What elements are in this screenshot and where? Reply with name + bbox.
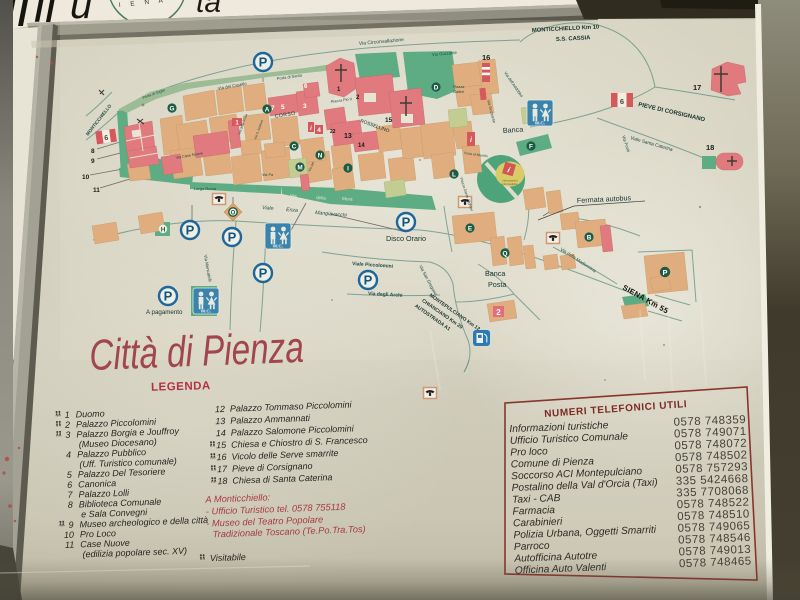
svg-text:N: N	[318, 152, 323, 159]
svg-text:16: 16	[216, 452, 226, 462]
svg-text:Posta: Posta	[488, 280, 506, 289]
svg-text:14: 14	[216, 428, 226, 438]
svg-text:8: 8	[68, 500, 73, 510]
svg-text:13: 13	[344, 133, 352, 140]
svg-text:Disco Orario: Disco Orario	[386, 234, 426, 243]
svg-text:O: O	[231, 211, 236, 217]
svg-text:15: 15	[216, 440, 227, 450]
svg-text:Enza: Enza	[286, 207, 298, 214]
svg-text:7: 7	[271, 105, 275, 112]
svg-text:3: 3	[303, 103, 307, 110]
svg-text:Carabinieri: Carabinieri	[513, 516, 563, 529]
svg-text:Via Pa: Via Pa	[262, 173, 274, 177]
svg-text:Mura: Mura	[342, 196, 353, 202]
svg-text:G: G	[170, 105, 175, 112]
svg-text:Largo Roma: Largo Roma	[194, 186, 217, 191]
svg-text:Q: Q	[503, 250, 508, 257]
svg-text:1: 1	[65, 410, 70, 420]
svg-text:11: 11	[65, 540, 75, 550]
svg-text:11: 11	[93, 187, 100, 194]
svg-text:5: 5	[281, 104, 285, 111]
svg-text:Banca: Banca	[485, 269, 505, 278]
svg-text:della: della	[316, 195, 326, 201]
svg-text:15: 15	[385, 117, 393, 124]
svg-text:A: A	[265, 106, 270, 113]
svg-text:17: 17	[217, 464, 228, 474]
svg-text:Parroco: Parroco	[514, 541, 550, 553]
svg-text:22: 22	[330, 129, 336, 135]
svg-text:ta: ta	[196, 0, 221, 19]
svg-text:4: 4	[66, 450, 71, 460]
svg-text:Taxi - CAB: Taxi - CAB	[512, 493, 561, 506]
svg-text:13: 13	[215, 416, 225, 426]
svg-text:H: H	[161, 226, 166, 233]
svg-text:L: L	[452, 171, 456, 178]
svg-text:F: F	[529, 143, 533, 150]
svg-text:Viale: Viale	[262, 205, 274, 212]
svg-text:E: E	[468, 225, 473, 232]
svg-text:C: C	[292, 143, 297, 150]
svg-text:Città di Pienza: Città di Pienza	[89, 324, 305, 380]
svg-text:18: 18	[217, 476, 227, 486]
svg-text:14: 14	[358, 143, 365, 149]
svg-text:A pagamento: A pagamento	[146, 309, 183, 316]
svg-text:18: 18	[706, 143, 714, 152]
svg-text:M: M	[297, 164, 302, 171]
svg-text:10: 10	[82, 174, 90, 181]
svg-text:Piazza: Piazza	[453, 85, 465, 89]
svg-text:8: 8	[91, 148, 95, 155]
svg-text:D: D	[434, 84, 439, 91]
svg-text:I: I	[347, 165, 349, 172]
svg-text:9: 9	[68, 520, 73, 530]
svg-text:3: 3	[65, 430, 70, 440]
svg-text:B: B	[587, 234, 592, 241]
svg-text:6: 6	[67, 480, 72, 490]
svg-text:P: P	[662, 268, 667, 277]
svg-text:2: 2	[64, 420, 70, 430]
svg-text:9: 9	[91, 158, 95, 165]
svg-text:LEGENDA: LEGENDA	[151, 380, 211, 394]
svg-text:Via: Via	[290, 193, 297, 198]
svg-text:Galleri: Galleri	[453, 90, 464, 94]
svg-text:10: 10	[64, 530, 74, 540]
svg-text:12: 12	[215, 404, 225, 414]
svg-text:Farmacia: Farmacia	[512, 505, 555, 518]
svg-text:16: 16	[482, 53, 490, 62]
svg-text:Pro loco: Pro loco	[510, 446, 548, 458]
svg-text:17: 17	[693, 83, 701, 92]
svg-text:Banca: Banca	[503, 125, 524, 135]
